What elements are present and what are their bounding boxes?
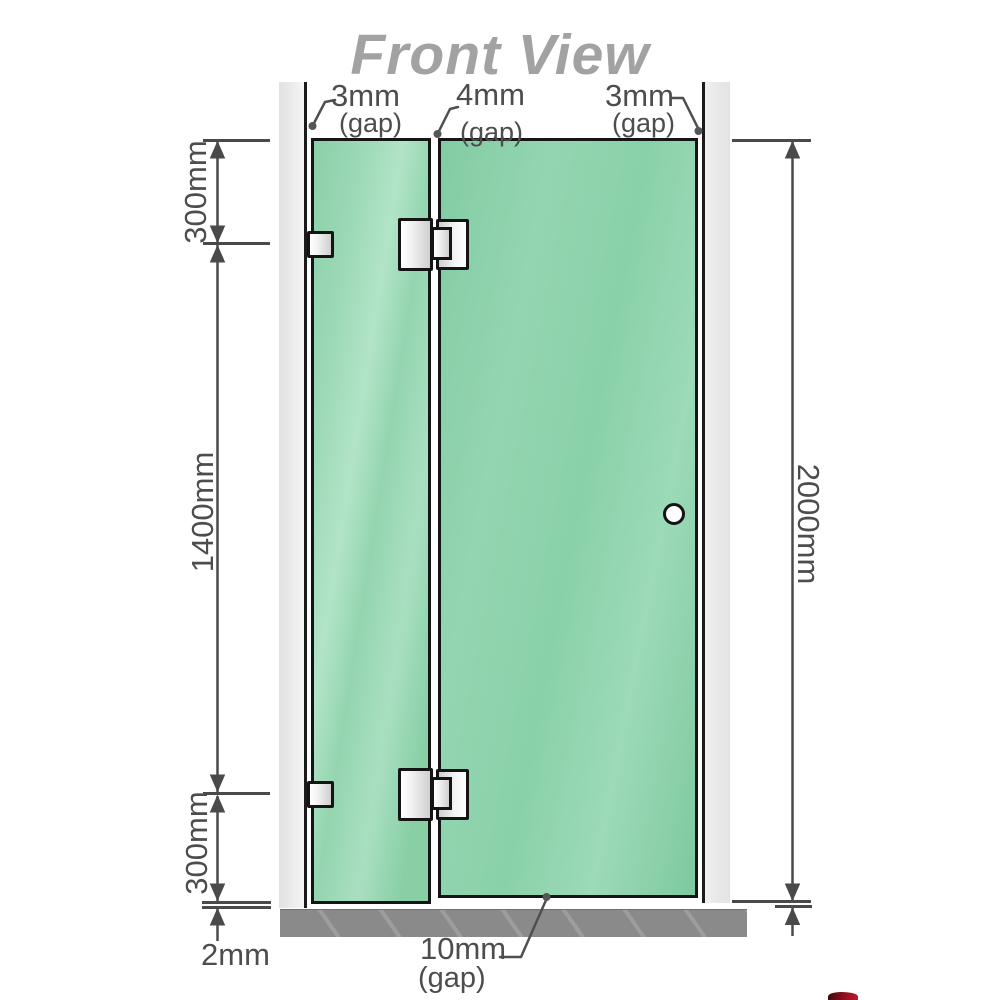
leader-gap-middle [438,107,459,134]
gap-label-right: 3mm (gap) [605,80,675,137]
gap-value: 10mm [420,933,506,964]
gap-sub: (gap) [460,119,525,146]
arrow-up-icon [211,246,225,262]
dim-label-1400: 1400mm [185,452,221,573]
leader-gap-right [672,98,699,129]
gap-value: 3mm [331,80,402,111]
hinge-bottom [398,768,470,821]
arrow-up-icon [786,909,800,925]
door-glass-panel [438,138,698,898]
dim-label-300-bottom: 300mm [179,791,215,894]
arrow-down-icon [211,775,225,791]
hinge-plate-left-icon [398,218,433,271]
gap-sub: (gap) [418,964,506,993]
gap-label-middle: 4mm (gap) [456,79,525,146]
gap-value: 4mm [456,79,525,110]
leader-dot [309,122,317,130]
leader-dot [434,130,442,138]
floor-base [280,909,747,937]
dim-label-2mm: 2mm [201,937,270,973]
hinge-plate-left-icon [398,768,433,821]
logo-sliver-icon [828,992,858,1000]
gap-sub: (gap) [339,110,402,137]
arrow-down-icon [786,884,800,900]
arrow-up-icon [786,142,800,158]
wall-bracket-top [307,231,334,258]
wall-right-edge-line [702,82,705,903]
hinge-tongue-icon [431,227,452,260]
dim-label-300-top: 300mm [178,140,214,243]
dim-label-2000: 2000mm [790,464,826,585]
hinge-tongue-icon [431,777,452,810]
wall-bracket-bottom [307,781,334,808]
gap-label-bottom: 10mm (gap) [420,933,506,993]
wall-left [279,82,304,908]
wall-right [705,82,730,903]
gap-label-left: 3mm (gap) [331,80,402,137]
gap-value: 3mm [605,80,675,111]
gap-sub: (gap) [612,110,675,137]
door-handle-knob [663,503,685,525]
front-view-diagram: Front View [0,0,1000,1000]
hinge-top [398,218,470,271]
arrow-up-icon [211,909,225,925]
